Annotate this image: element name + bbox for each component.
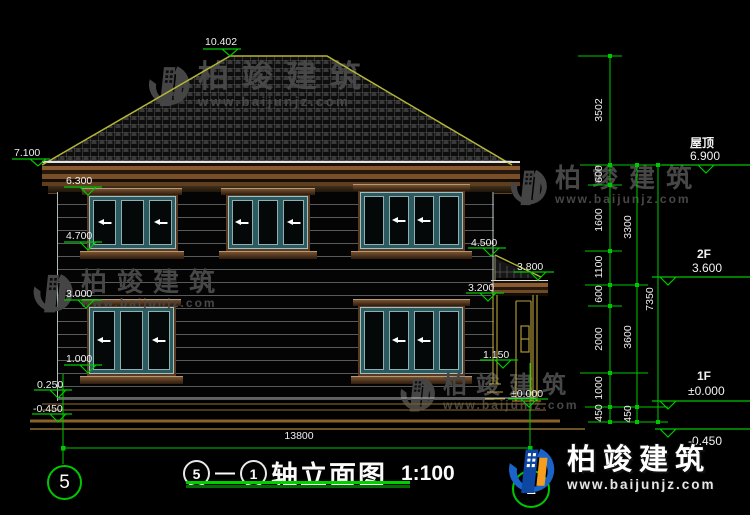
window-lintel <box>353 299 470 306</box>
window-lintel <box>221 188 315 195</box>
grid-bubble-5: 5 <box>47 465 82 500</box>
window-pane <box>121 200 144 245</box>
dimension: 450 <box>622 390 634 438</box>
grid-number: 5 <box>59 472 70 494</box>
dimension: 450 <box>593 389 605 437</box>
dimension: 600 <box>593 270 605 318</box>
watermark: 柏竣建筑 www.baijunjz.com <box>140 61 374 117</box>
window-pane <box>439 311 459 370</box>
level-label: 0.250 <box>37 379 63 391</box>
elevation-drawing-canvas: 柏竣建筑 www.baijunjz.com 柏竣建筑 www.baijunjz.… <box>0 18 750 515</box>
window-pane <box>389 311 409 370</box>
watermark-url: www.baijunjz.com <box>81 296 225 310</box>
storey-elevation: ±0.000 <box>688 384 725 398</box>
window-pane <box>283 200 304 245</box>
watermark-url: www.baijunjz.com <box>443 398 579 412</box>
logo-brand: 柏竣建筑 <box>567 445 716 477</box>
dimension: 600 <box>593 150 605 198</box>
storey-elevation: 3.600 <box>692 261 722 275</box>
window-pane <box>414 311 434 370</box>
logo-url: www.baijunjz.com <box>567 477 716 492</box>
title-underline <box>186 481 410 484</box>
level-label: 10.402 <box>205 36 237 48</box>
drawing-title: 5 — 1 轴立面图 1:100 <box>183 454 455 493</box>
porch-cornice <box>491 280 548 296</box>
window-1f-right <box>358 305 465 376</box>
window-lintel <box>82 188 182 195</box>
level-label: ±0.000 <box>511 388 543 400</box>
dimension: 2000 <box>593 315 605 363</box>
watermark-brand: 柏竣建筑 <box>198 61 374 94</box>
window-pane <box>258 200 279 245</box>
window-2f-middle <box>226 194 310 251</box>
watermark-brand: 柏竣建筑 <box>555 165 703 192</box>
window-pane <box>93 200 116 245</box>
window-2f-left <box>87 194 178 251</box>
window-pane <box>232 200 253 245</box>
watermark-building-icon <box>503 165 549 215</box>
watermark-building-icon <box>393 373 437 421</box>
main-eave-cornice <box>42 161 520 186</box>
window-sill <box>80 376 183 384</box>
level-label: -0.450 <box>33 403 63 415</box>
storey-name: 1F <box>697 369 711 383</box>
watermark: 柏竣建筑 www.baijunjz.com <box>393 373 579 421</box>
watermark-url: www.baijunjz.com <box>198 94 374 109</box>
level-label: 7.100 <box>14 147 40 159</box>
window-pane <box>364 311 384 370</box>
watermark-brand: 柏竣建筑 <box>81 269 225 296</box>
level-label: 6.300 <box>66 175 92 187</box>
dimension: 3502 <box>593 86 605 134</box>
level-label: 1.000 <box>66 353 92 365</box>
dimension: 3600 <box>622 313 634 361</box>
watermark: 柏竣建筑 www.baijunjz.com <box>25 269 225 323</box>
level-label: 4.500 <box>471 237 497 249</box>
window-sill <box>351 251 472 259</box>
window-lintel <box>353 184 470 191</box>
watermark-building-icon <box>140 61 192 117</box>
title-text: 轴立面图 <box>271 454 387 493</box>
dimension: 7350 <box>644 275 656 323</box>
level-label: 3.000 <box>66 288 92 300</box>
window-pane <box>389 196 409 245</box>
window-sill <box>219 251 317 259</box>
overall-width-dimension: 13800 <box>275 430 323 442</box>
window-sill <box>80 251 184 259</box>
dimension: 3300 <box>622 203 634 251</box>
window-pane <box>414 196 434 245</box>
window-pane <box>149 200 172 245</box>
window-2f-right <box>358 190 465 251</box>
level-label: 3.800 <box>517 261 543 273</box>
logo-building-icon <box>497 445 559 503</box>
level-label: 1.150 <box>483 349 509 361</box>
storey-name: 2F <box>697 247 711 261</box>
level-label: 3.200 <box>468 282 494 294</box>
company-logo: 柏竣建筑 www.baijunjz.com <box>497 445 716 503</box>
dimension: 1600 <box>593 196 605 244</box>
window-pane <box>439 196 459 245</box>
level-label: 4.700 <box>66 230 92 242</box>
storey-elevation: 6.900 <box>690 149 720 163</box>
window-pane <box>364 196 384 245</box>
